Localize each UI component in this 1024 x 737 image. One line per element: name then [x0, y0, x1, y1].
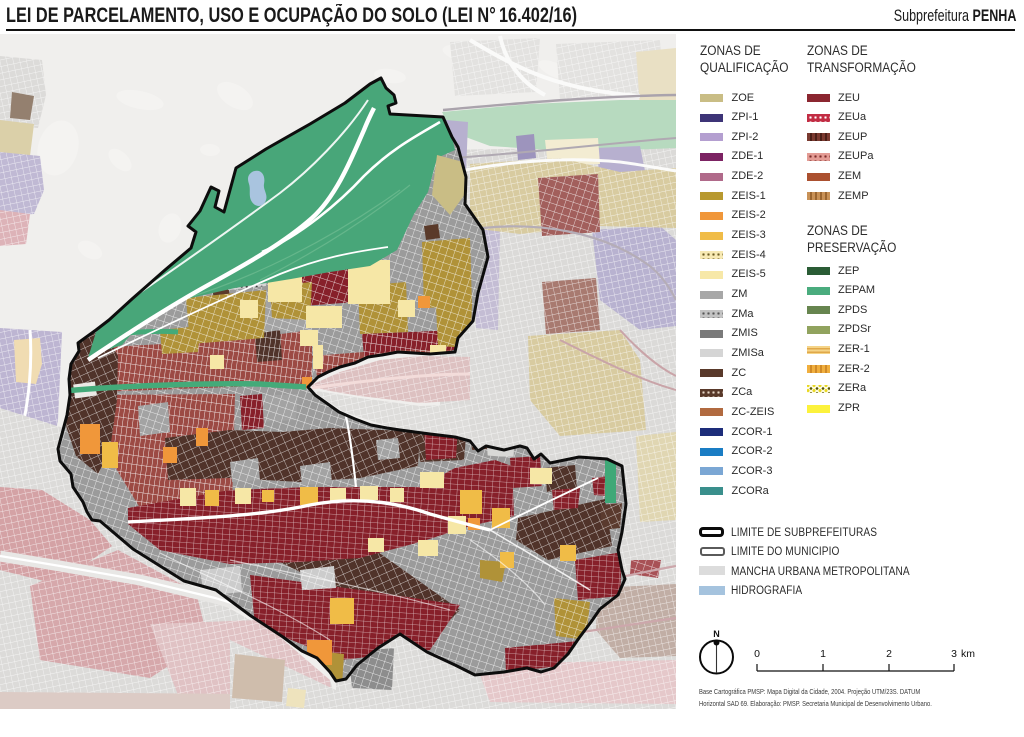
svg-text:2: 2: [886, 648, 892, 660]
svg-text:3: 3: [951, 648, 957, 660]
svg-text:N: N: [713, 629, 720, 639]
svg-text:km: km: [961, 648, 975, 660]
svg-text:1: 1: [820, 648, 826, 660]
svg-text:0: 0: [754, 648, 760, 660]
